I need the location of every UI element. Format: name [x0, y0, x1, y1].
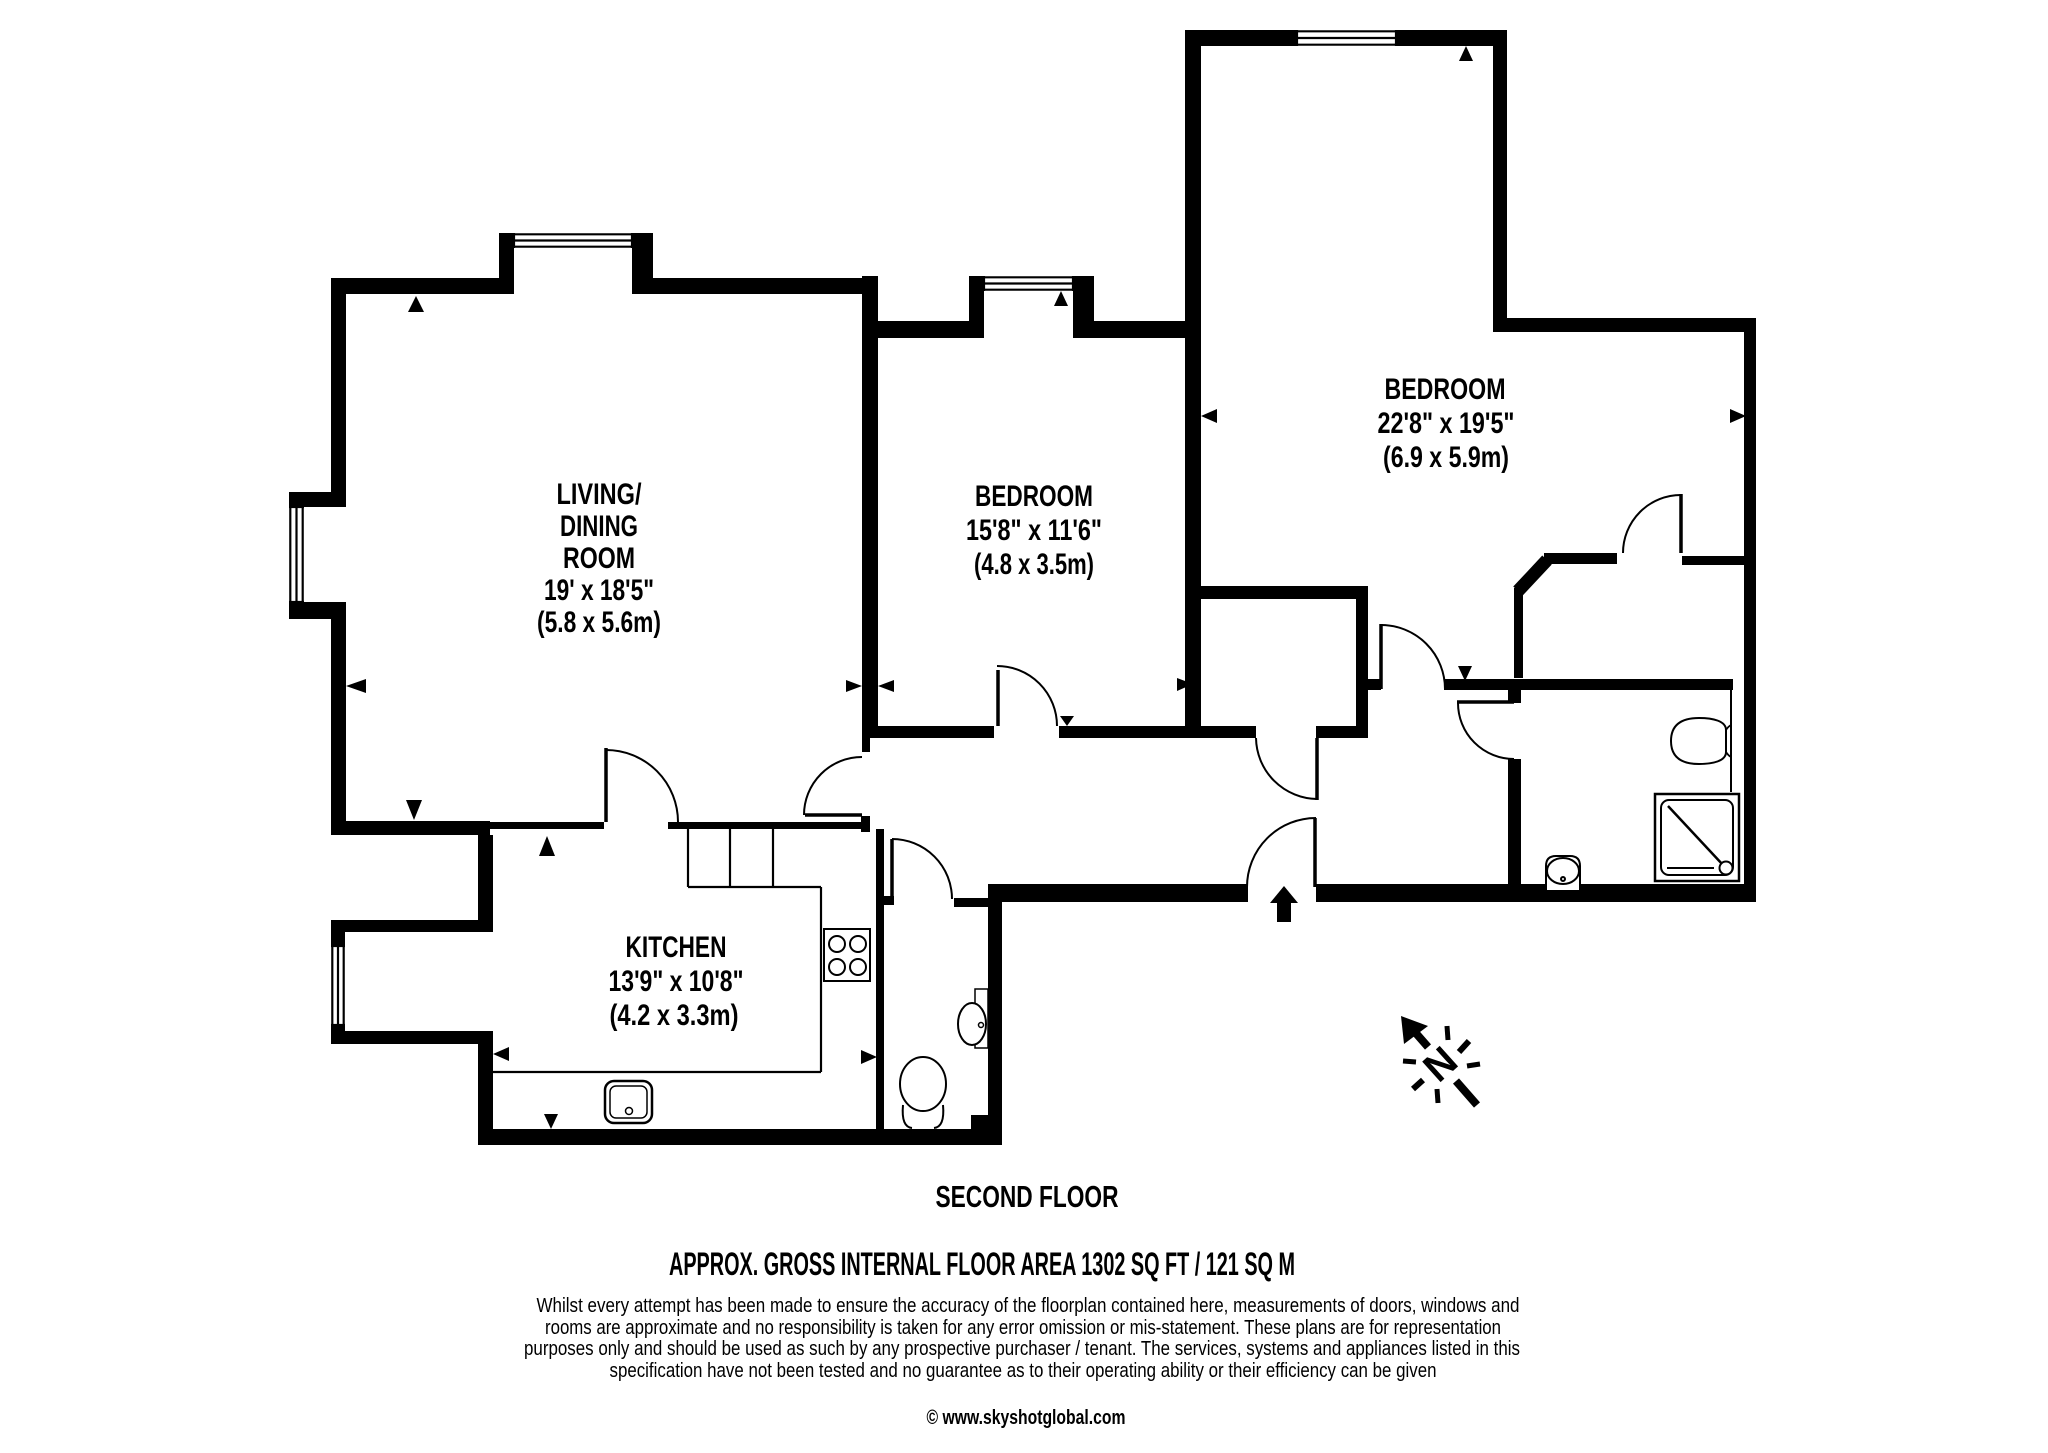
svg-text:15'8" x 11'6": 15'8" x 11'6" [966, 514, 1102, 547]
svg-text:(4.2 x 3.3m): (4.2 x 3.3m) [610, 999, 739, 1032]
svg-text:19' x 18'5": 19' x 18'5" [544, 574, 654, 607]
svg-text:22'8" x 19'5": 22'8" x 19'5" [1378, 407, 1515, 440]
svg-text:(6.9 x 5.9m): (6.9 x 5.9m) [1383, 441, 1509, 474]
svg-text:KITCHEN: KITCHEN [626, 931, 727, 964]
svg-text:(5.8 x 5.6m): (5.8 x 5.6m) [537, 606, 661, 639]
svg-text:© www.skyshotglobal.com: © www.skyshotglobal.com [927, 1407, 1126, 1429]
svg-text:ROOM: ROOM [563, 542, 635, 575]
svg-text:BEDROOM: BEDROOM [975, 480, 1093, 513]
svg-text:LIVING/: LIVING/ [557, 478, 643, 511]
svg-text:(4.8 x 3.5m): (4.8 x 3.5m) [974, 548, 1094, 581]
svg-text:APPROX. GROSS INTERNAL FLOOR A: APPROX. GROSS INTERNAL FLOOR AREA 1302 S… [669, 1246, 1295, 1282]
svg-text:Whilst every attempt has been: Whilst every attempt has been made to en… [537, 1295, 1520, 1317]
svg-text:SECOND FLOOR: SECOND FLOOR [936, 1179, 1119, 1214]
svg-text:13'9" x 10'8": 13'9" x 10'8" [609, 965, 744, 998]
svg-text:rooms are approximate and no r: rooms are approximate and no responsibil… [545, 1317, 1501, 1339]
svg-text:DINING: DINING [560, 510, 638, 543]
svg-text:purposes only and should be u: purposes only and should be used as such… [524, 1338, 1520, 1360]
svg-text:BEDROOM: BEDROOM [1385, 373, 1506, 406]
svg-text:specification have not been te: specification have not been tested and n… [610, 1360, 1437, 1382]
